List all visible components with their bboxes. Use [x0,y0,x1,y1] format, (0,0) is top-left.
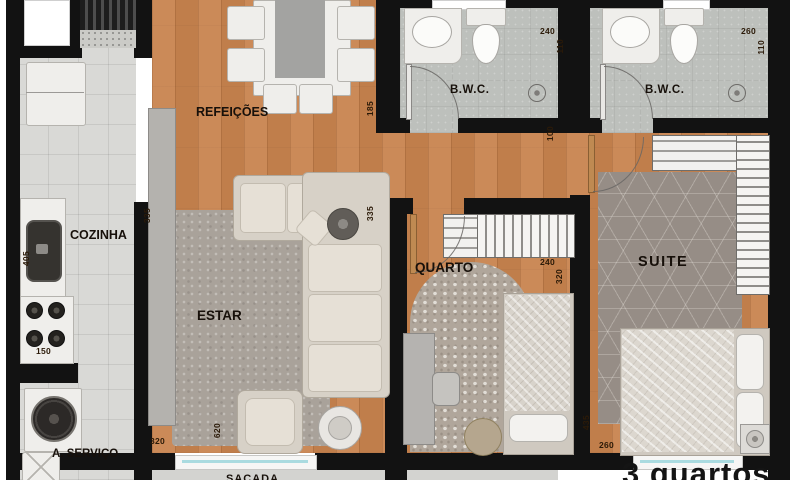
floor-plan: COZINHA REFEIÇÕES ESTAR QUARTO SUITE B.W… [0,0,800,480]
bathroom2-basin [610,16,650,48]
suite-pillow [736,334,764,390]
sofa-cushion [308,344,382,392]
desk [403,333,435,445]
wall-dining-bath [376,0,400,133]
pouf [464,418,502,456]
room-label-estar: ESTAR [197,308,242,323]
burner [48,302,65,319]
dim-estar-width: 320 [150,437,165,446]
dim-refeicoes-opening: 185 [366,101,375,116]
room-label-sacada: SACADA [226,473,279,480]
wall-bottom-center [315,453,633,470]
wall-kitchen-service [18,363,78,383]
dim-bwc1-width: 240 [540,27,555,36]
fridge-door-line [26,92,84,93]
room-label-bwc2: B.W.C. [645,84,684,96]
kitchen-counter-top [80,30,136,48]
sofa-cushion [308,244,382,292]
burner [48,330,65,347]
wall-bathroom2-bottom [653,118,770,133]
wall-bathroom1-bottom [458,118,558,133]
single-bed-pillow [509,414,568,442]
round-side-table-inner [328,416,352,440]
wall-bathroom2-bottom-left [588,118,602,133]
wall-bedroom-top [464,198,572,214]
single-bed-duvet [505,295,570,411]
room-label-refeicoes: REFEIÇÕES [196,105,268,119]
wall-left-outer [6,0,20,480]
wardrobe-hangers [477,214,575,258]
bathroom2-shower-drain [728,84,746,102]
dining-chair [227,6,265,40]
wall-bathroom1-bottom-left [400,118,410,133]
dim-bwc2-depth: 110 [757,40,766,55]
dim-cozinha-depth: 405 [22,251,31,266]
dim-estar-left: 335 [143,208,152,223]
wall-bath-separator [558,0,590,133]
room-label-suite: SUITE [638,254,688,270]
wall-right-outer [768,0,790,480]
room-label-quarto: QUARTO [415,260,473,275]
living-sideboard [148,108,176,426]
armchair-cushion [245,398,295,446]
washing-machine-drum [31,396,77,442]
room-label-cozinha: COZINHA [70,228,127,242]
dining-chair [337,6,375,40]
nightstand-lamp [746,430,764,448]
kitchen-faucet [36,244,48,254]
bathroom1-basin [412,16,452,48]
dim-hall: 100 [546,126,555,141]
dining-chair [227,48,265,82]
double-bed-duvet [622,330,734,452]
bathroom1-shower-drain [528,84,546,102]
dim-quarto-width: 240 [540,258,555,267]
dim-bwc1-depth: 110 [556,39,565,54]
dining-chair [337,48,375,82]
side-table-dark [327,208,359,240]
dim-quarto-depth: 320 [555,269,564,284]
dim-bwc2-width: 260 [741,27,756,36]
room-label-servico: A. SERVIÇO [52,448,118,460]
suite-wardrobe-shelves [652,135,740,171]
kitchen-upper-cabinet [80,0,136,30]
kitchen-window [24,0,70,46]
suite-wardrobe-hangers [736,135,770,295]
plan-title: 3 quartos [622,456,771,480]
sofa-cushion [308,294,382,342]
dining-chair [299,84,333,114]
burner [26,302,43,319]
balcony-door-glass [182,460,308,463]
dim-cozinha-width: 150 [36,347,51,356]
dim-estar-depth: 620 [213,423,222,438]
wall-kitchen-stub [134,0,152,58]
burner [26,330,43,347]
dim-estar-right: 335 [366,206,375,221]
dim-suite-width: 260 [599,441,614,450]
sofa-cushion [240,183,286,233]
fridge [26,62,86,126]
dining-table-runner [275,0,325,78]
room-label-bwc1: B.W.C. [450,84,489,96]
dim-suite-depth: 435 [582,415,591,430]
desk-chair [432,372,460,406]
